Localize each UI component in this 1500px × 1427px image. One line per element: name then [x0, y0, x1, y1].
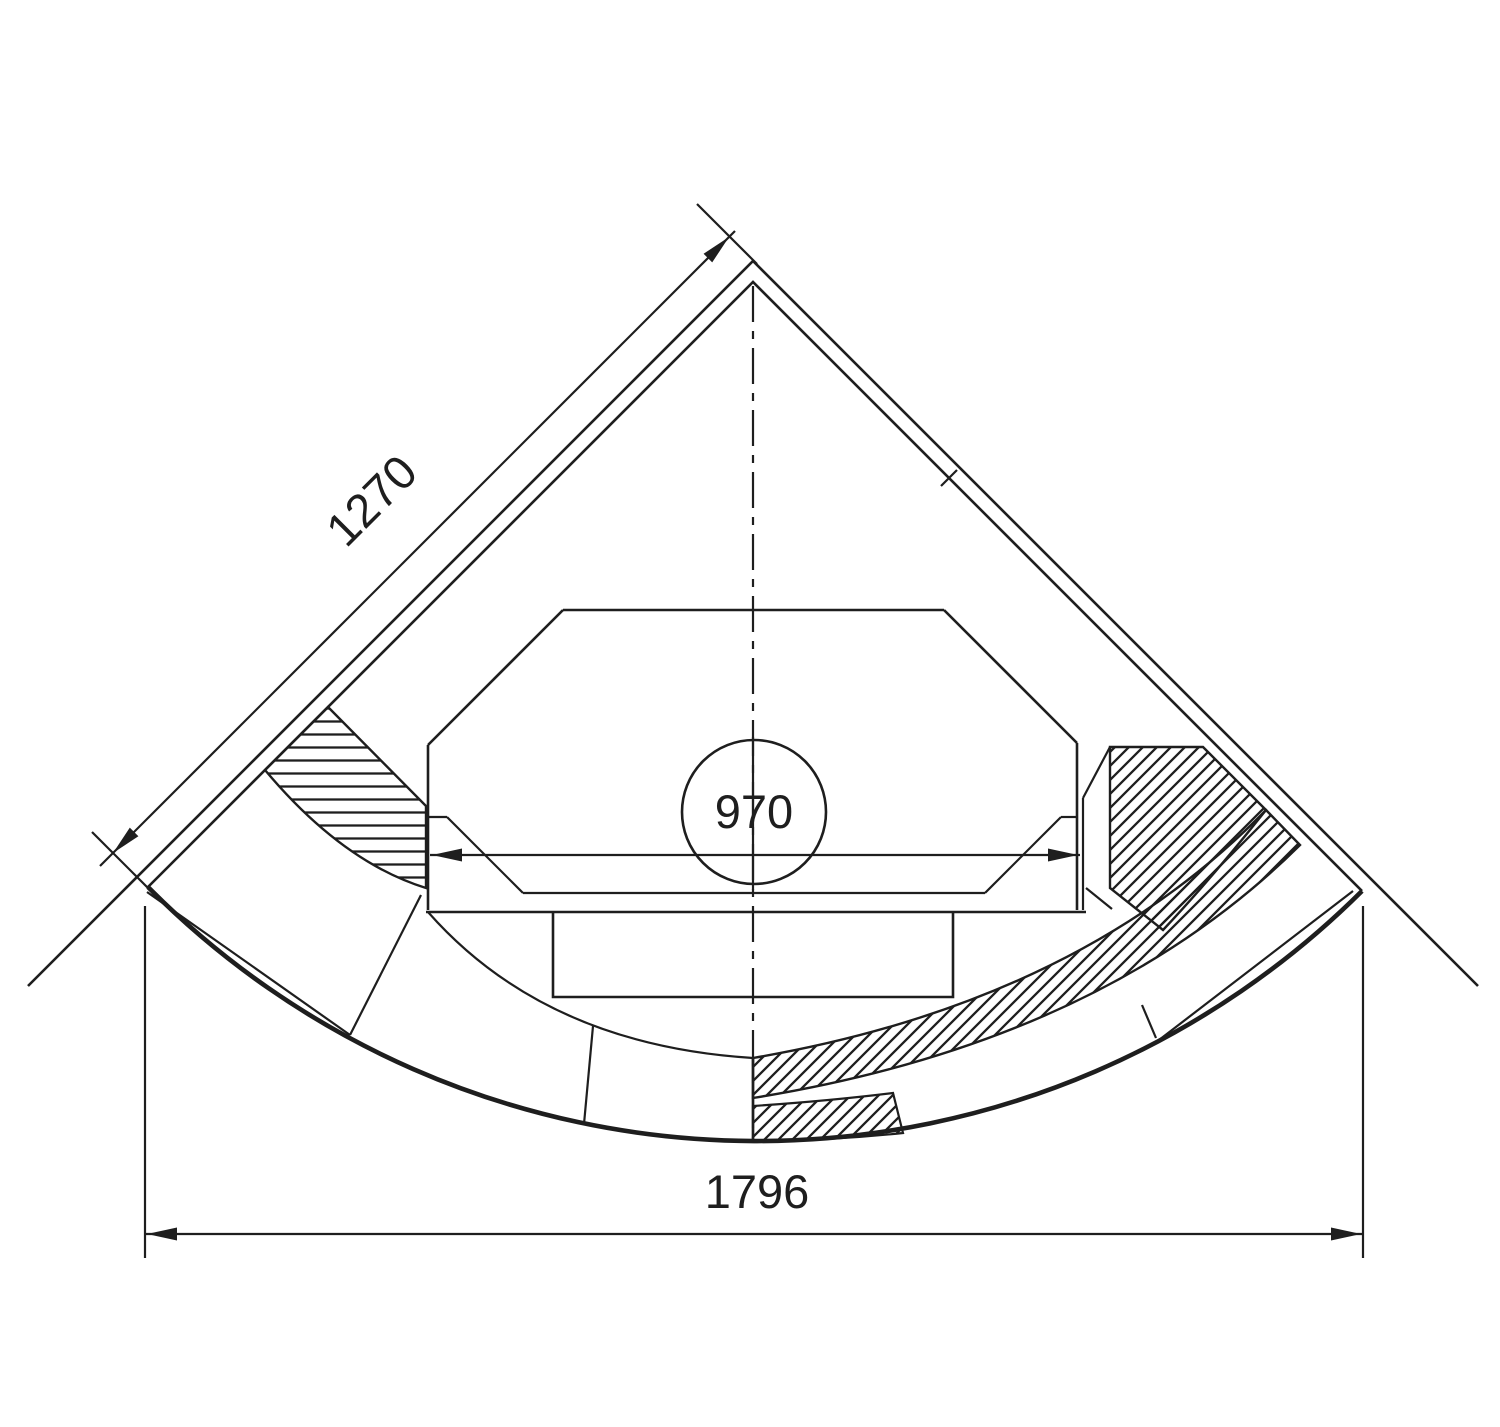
door-track-upper-chamfer	[1083, 747, 1110, 798]
dimension-opening: 970	[430, 737, 1080, 890]
dim-970-label: 970	[715, 785, 793, 838]
left-masonry-hatch	[265, 707, 426, 888]
dim-970-arrow-right	[1048, 849, 1078, 862]
left-panel-edge-2	[350, 895, 421, 1035]
door-track-lower-chamfer	[1086, 888, 1112, 909]
dimension-side-wall: 1270	[92, 204, 757, 902]
left-panel-divider	[584, 1026, 593, 1124]
dim-1796-arrow-right	[1331, 1228, 1361, 1241]
corner-fireplace-plan-drawing: 1270 970 1796	[0, 0, 1500, 1427]
door-band-hatch-small	[753, 1093, 903, 1141]
left-panel-edge-1	[147, 892, 350, 1035]
left-panel-inner-curve	[428, 912, 753, 1058]
body-right-chamfer	[944, 610, 1077, 743]
dim-1796-arrow-left	[147, 1228, 177, 1241]
dim-970-arrow-left	[432, 849, 462, 862]
body-left-chamfer	[428, 610, 563, 745]
dim-1270-label: 1270	[316, 445, 427, 556]
dim-1270-line	[100, 231, 735, 866]
right-panel-divider	[1142, 1005, 1156, 1038]
dim-1796-label: 1796	[705, 1165, 810, 1218]
drawing-canvas: 1270 970 1796	[0, 0, 1500, 1427]
